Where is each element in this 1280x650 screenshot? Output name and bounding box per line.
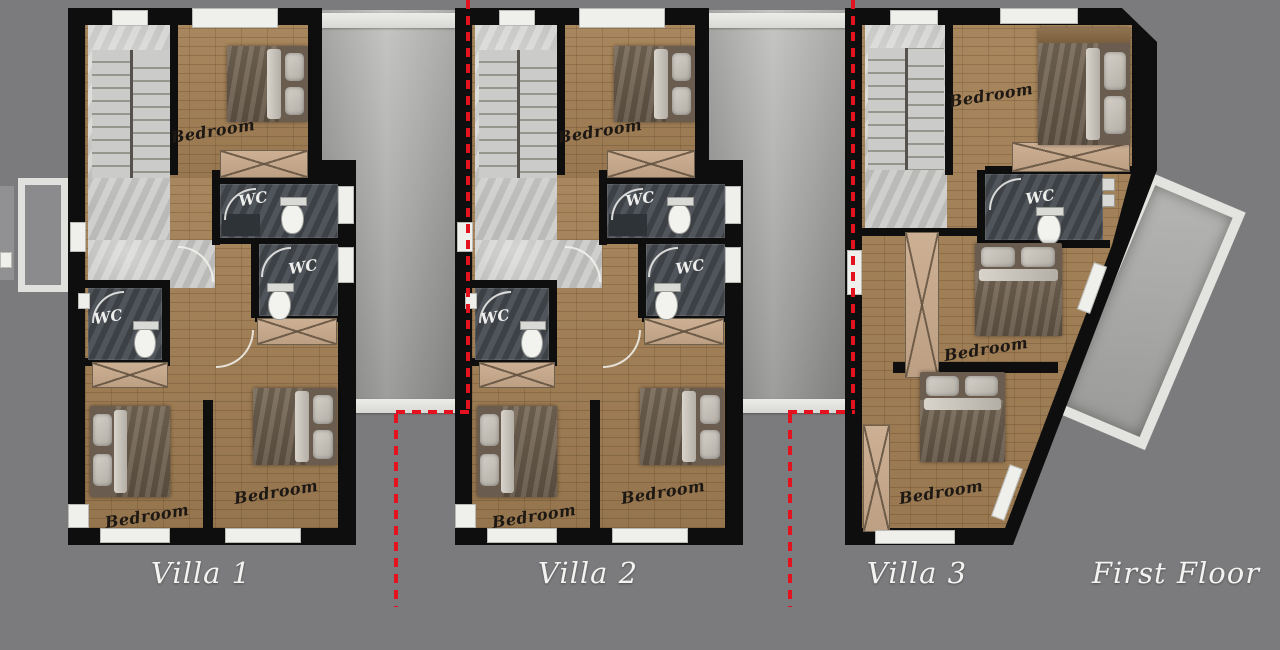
stair-flight [868,48,905,170]
bed-sheet [924,398,1001,410]
wall [977,170,985,248]
window [1000,8,1078,24]
window [890,10,938,25]
villa-label: Villa 3 [867,556,967,590]
bed-headboard [1038,28,1130,43]
fixture-square [1102,178,1115,191]
bed-pillow [981,247,1015,267]
red-boundary-line [396,410,470,414]
toilet-tank [1036,207,1064,216]
floor-label: First Floor [1092,556,1260,590]
dresser [1012,142,1130,172]
bed-pillow [926,376,959,396]
bed-sheet [1086,48,1100,140]
floor-plan: WC WC WC [0,0,1280,650]
bed-pillow [1104,52,1126,90]
bed-pillow [965,376,998,396]
stair-flight [908,48,944,170]
wardrobe [863,425,890,532]
stairs [868,48,944,170]
red-boundary-line [466,0,470,410]
toilet [1037,214,1061,245]
fixture-square [1102,194,1115,207]
red-boundary-line [788,414,792,607]
villa-3: WC [0,0,1280,650]
bed [975,243,1062,336]
red-boundary-line [788,410,855,414]
bed-pillow [1104,96,1126,134]
red-boundary-line [851,0,855,410]
red-boundary-line [394,414,398,607]
wardrobe [905,232,939,378]
bed [920,372,1005,462]
bed-pillow [1021,247,1055,267]
bed [1038,28,1130,145]
window [875,530,955,544]
bed-sheet [979,269,1058,281]
stair-divider [905,48,908,170]
